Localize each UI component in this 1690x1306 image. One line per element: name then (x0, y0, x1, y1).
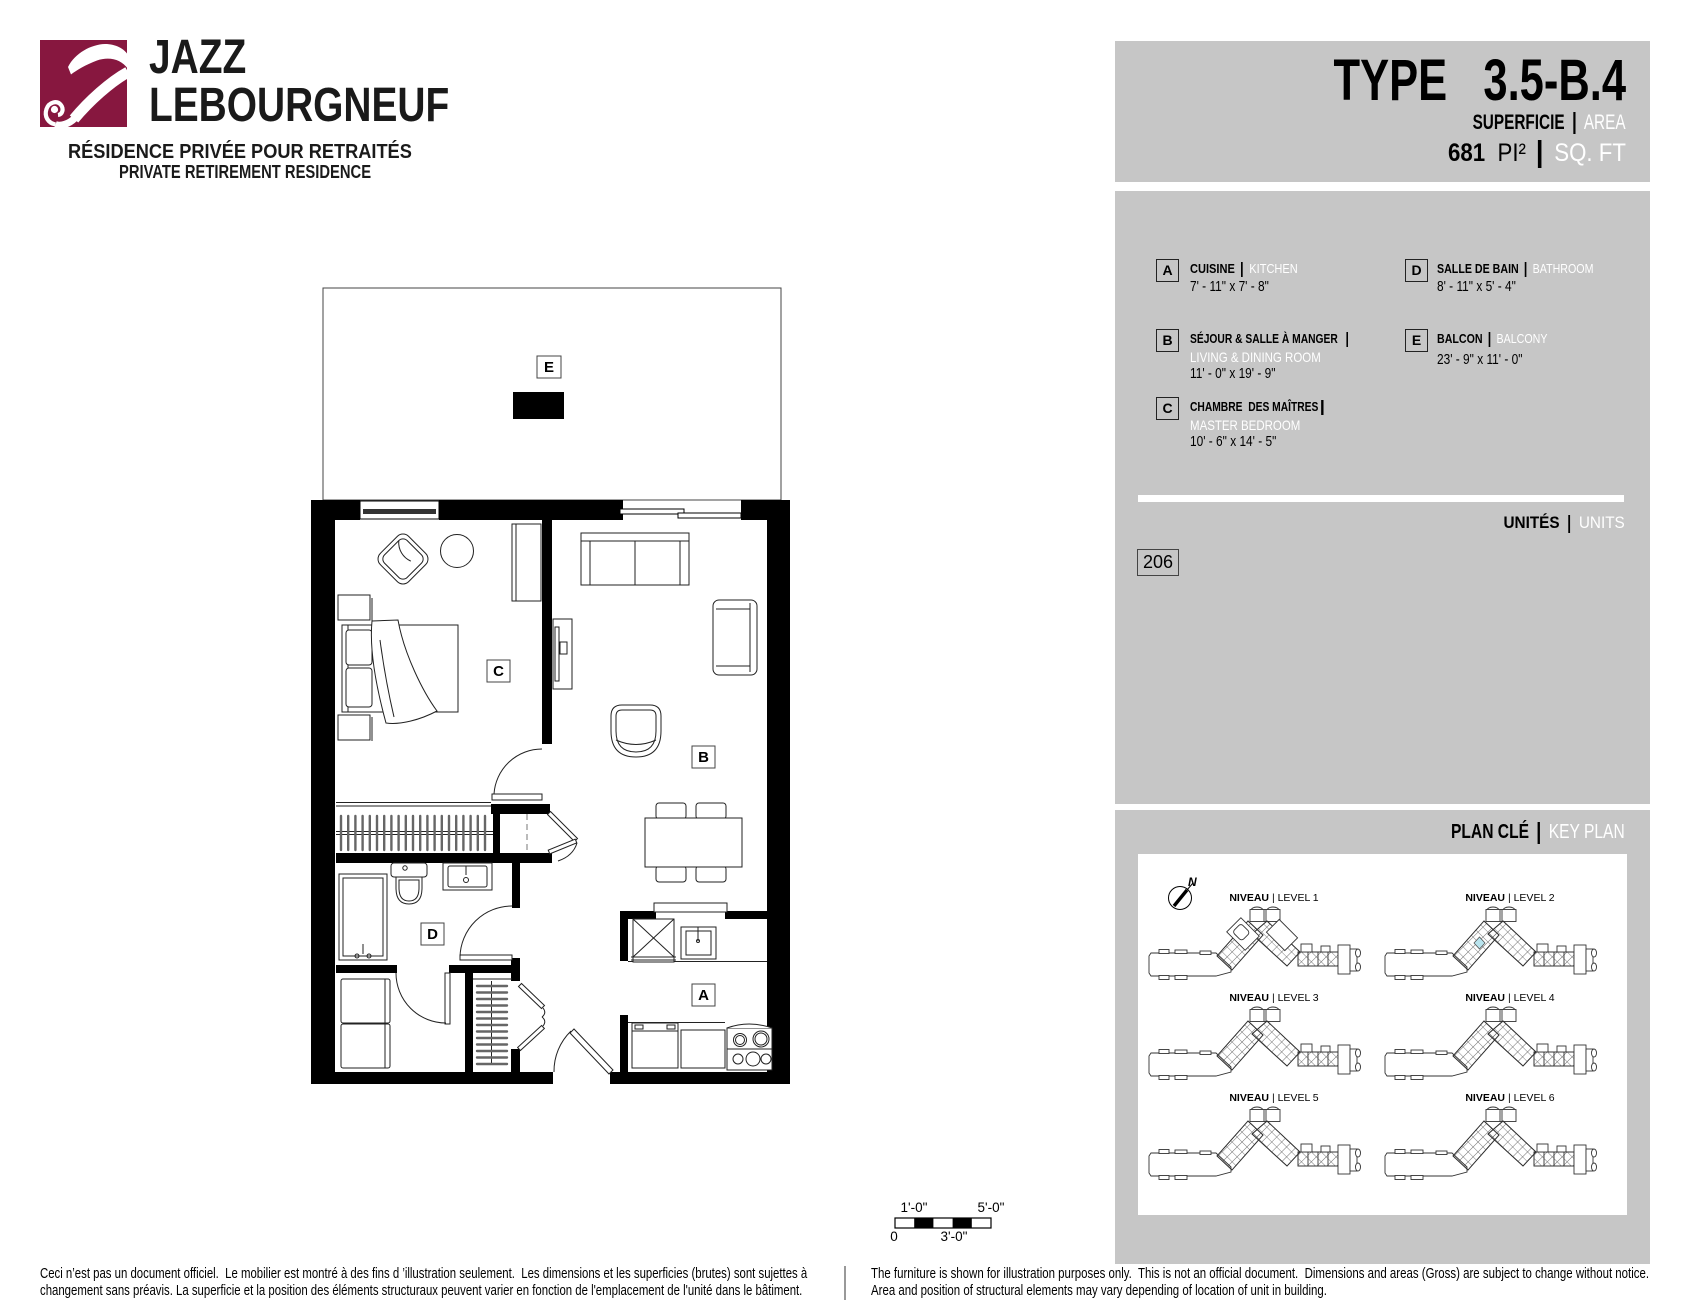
svg-text:NIVEAU | LEVEL 3: NIVEAU | LEVEL 3 (1229, 992, 1318, 1004)
svg-text:0: 0 (890, 1229, 898, 1244)
svg-text:E: E (544, 359, 554, 376)
svg-text:B: B (698, 749, 709, 766)
svg-text:C: C (493, 663, 504, 680)
svg-text:5'-0": 5'-0" (978, 1200, 1005, 1215)
svg-text:3'-0": 3'-0" (941, 1229, 968, 1244)
svg-text:D: D (427, 926, 438, 943)
svg-text:NIVEAU | LEVEL 4: NIVEAU | LEVEL 4 (1465, 992, 1554, 1004)
svg-text:A: A (698, 987, 709, 1004)
svg-text:1'-0": 1'-0" (901, 1200, 928, 1215)
svg-text:N: N (1188, 875, 1197, 889)
svg-text:NIVEAU | LEVEL 6: NIVEAU | LEVEL 6 (1465, 1092, 1554, 1104)
svg-text:NIVEAU | LEVEL 1: NIVEAU | LEVEL 1 (1229, 892, 1318, 904)
svg-text:NIVEAU | LEVEL 2: NIVEAU | LEVEL 2 (1465, 892, 1554, 904)
svg-text:NIVEAU | LEVEL 5: NIVEAU | LEVEL 5 (1229, 1092, 1318, 1104)
